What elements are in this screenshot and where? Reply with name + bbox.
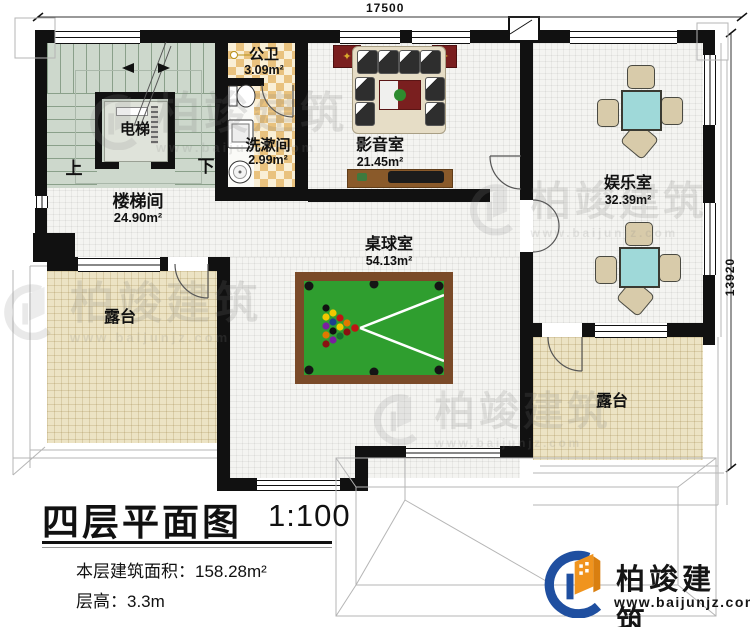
- game-table: [621, 90, 662, 131]
- room-label-gongwei: 公卫: [236, 47, 292, 63]
- chair: [595, 256, 617, 284]
- wall: [703, 125, 715, 203]
- window: [78, 258, 160, 272]
- floor-plan-canvas: ✦ ✦: [0, 0, 750, 627]
- room-label-terrace-right: 露台: [592, 394, 632, 411]
- chair: [597, 99, 619, 127]
- sofa-cushion: [425, 77, 445, 101]
- star-icon: ✦: [342, 50, 351, 63]
- stair-up-label: 上: [64, 160, 84, 178]
- game-table-set: [595, 222, 680, 312]
- terrace-left-floor: [47, 271, 217, 443]
- window: [412, 31, 470, 44]
- wall: [368, 446, 406, 458]
- pool-table: [295, 272, 453, 384]
- floor-area-text: 本层建筑面积：158.28m²: [76, 557, 267, 582]
- sofa-cushion: [425, 102, 445, 126]
- wall: [215, 187, 308, 201]
- window: [704, 203, 716, 275]
- wall: [217, 478, 257, 491]
- tv-deco: [357, 173, 367, 181]
- brand-website: www.baijunjz.com: [614, 594, 750, 610]
- wall: [520, 43, 533, 200]
- window: [595, 325, 667, 338]
- window: [570, 31, 677, 44]
- wall: [703, 43, 715, 55]
- dimension-top: 17500: [366, 1, 404, 15]
- wall: [533, 323, 542, 337]
- window: [340, 31, 400, 44]
- room-label-media: 影音室: [348, 138, 412, 155]
- wall: [520, 252, 533, 446]
- brand-logo: 柏竣建筑 www.baijunjz.com: [542, 548, 742, 620]
- wall: [35, 208, 47, 233]
- wall: [160, 257, 168, 271]
- stair-down-label: 下: [196, 158, 216, 176]
- wall: [35, 30, 55, 43]
- plan-scale: 1:100: [268, 498, 351, 534]
- window: [704, 55, 716, 125]
- sofa-cushion: [420, 50, 441, 74]
- wall: [295, 43, 308, 190]
- room-label-entertainment: 娱乐室: [596, 176, 660, 193]
- wall: [703, 275, 715, 345]
- room-area-xishujian: 2.99m²: [232, 154, 304, 167]
- elevator-shaft-wall: [95, 92, 175, 99]
- chair: [625, 222, 653, 246]
- room-area-entertainment: 32.39m²: [598, 194, 658, 207]
- window: [406, 448, 500, 458]
- chair: [627, 65, 655, 89]
- window: [36, 196, 48, 208]
- title-underline: [42, 541, 332, 544]
- wall: [215, 43, 228, 187]
- wall: [140, 30, 340, 43]
- elevator-shaft-wall: [95, 162, 119, 169]
- wall: [47, 257, 78, 271]
- title-underline-thin: [42, 547, 332, 548]
- wall: [400, 30, 412, 43]
- plan-title: 四层平面图: [42, 492, 242, 546]
- room-label-stairwell: 楼梯间: [98, 193, 178, 211]
- floor-height-text: 层高：3.3m: [76, 587, 165, 612]
- wall: [582, 323, 595, 337]
- room-area-billiards: 54.13m²: [359, 255, 419, 268]
- wall: [35, 43, 47, 196]
- wall: [500, 446, 533, 458]
- sofa-cushion: [399, 50, 420, 74]
- brand-name: 柏竣建筑: [616, 556, 742, 627]
- chair: [659, 254, 681, 282]
- wall: [355, 446, 368, 491]
- sofa-cushion: [355, 77, 375, 101]
- wall: [217, 262, 230, 478]
- sofa-cushion: [357, 50, 378, 74]
- wall: [308, 189, 490, 202]
- chair: [661, 97, 683, 125]
- coffee-table: [379, 80, 421, 110]
- brand-logo-icon: [542, 548, 612, 618]
- plant-icon: [394, 89, 406, 101]
- pool-table-graphics: [304, 281, 444, 375]
- dimension-right: 13920: [723, 247, 737, 307]
- elevator-shaft-wall: [151, 162, 175, 169]
- room-label-terrace-left: 露台: [100, 310, 140, 327]
- room-label-elevator: 电梯: [95, 122, 175, 138]
- room-label-xishujian: 洗漱间: [230, 138, 306, 154]
- room-area-gongwei: 3.09m²: [234, 64, 294, 77]
- tv: [388, 171, 444, 183]
- elevator-door-slot: [116, 107, 148, 116]
- window: [55, 31, 140, 44]
- sofa-set: [352, 46, 446, 134]
- window: [257, 480, 340, 491]
- wall: [677, 30, 715, 43]
- room-area-stairwell: 24.90m²: [98, 211, 178, 225]
- room-area-media: 21.45m²: [350, 156, 410, 169]
- wall: [222, 78, 264, 86]
- sofa-cushion: [378, 50, 399, 74]
- game-table-set: [597, 65, 682, 155]
- sofa-cushion: [355, 102, 375, 126]
- game-table: [619, 247, 660, 288]
- room-label-billiards: 桌球室: [357, 237, 421, 254]
- chimney-symbol: [508, 16, 540, 42]
